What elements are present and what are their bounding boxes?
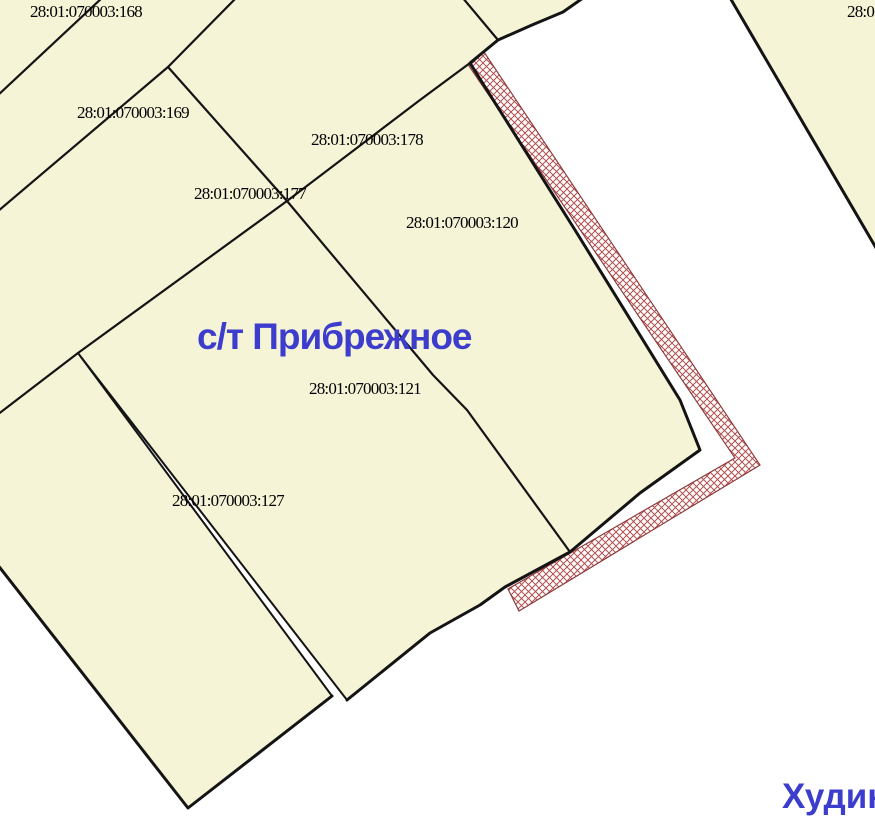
cadastral-map-canvas[interactable]: 28:01:070003:168 28:01:070003:169 28:01:…: [0, 0, 875, 827]
map-fill-layer: [0, 0, 875, 827]
parcel-label-177[interactable]: 28:01:070003:177: [194, 184, 306, 204]
place-name-label: Худин: [782, 777, 875, 817]
parcel-label-121[interactable]: 28:01:070003:121: [309, 379, 421, 399]
parcel-label-169[interactable]: 28:01:070003:169: [77, 103, 189, 123]
parcel-label-168[interactable]: 28:01:070003:168: [30, 2, 142, 22]
ne-parcel-fill[interactable]: [729, 0, 875, 256]
parcel-label-178[interactable]: 28:01:070003:178: [311, 130, 423, 150]
parcel-label-127[interactable]: 28:01:070003:127: [172, 491, 284, 511]
settlement-name-label: с/т Прибрежное: [197, 316, 472, 358]
parcel-label-ne-partial[interactable]: 28:0: [847, 2, 874, 22]
parcel-label-120[interactable]: 28:01:070003:120: [406, 213, 518, 233]
